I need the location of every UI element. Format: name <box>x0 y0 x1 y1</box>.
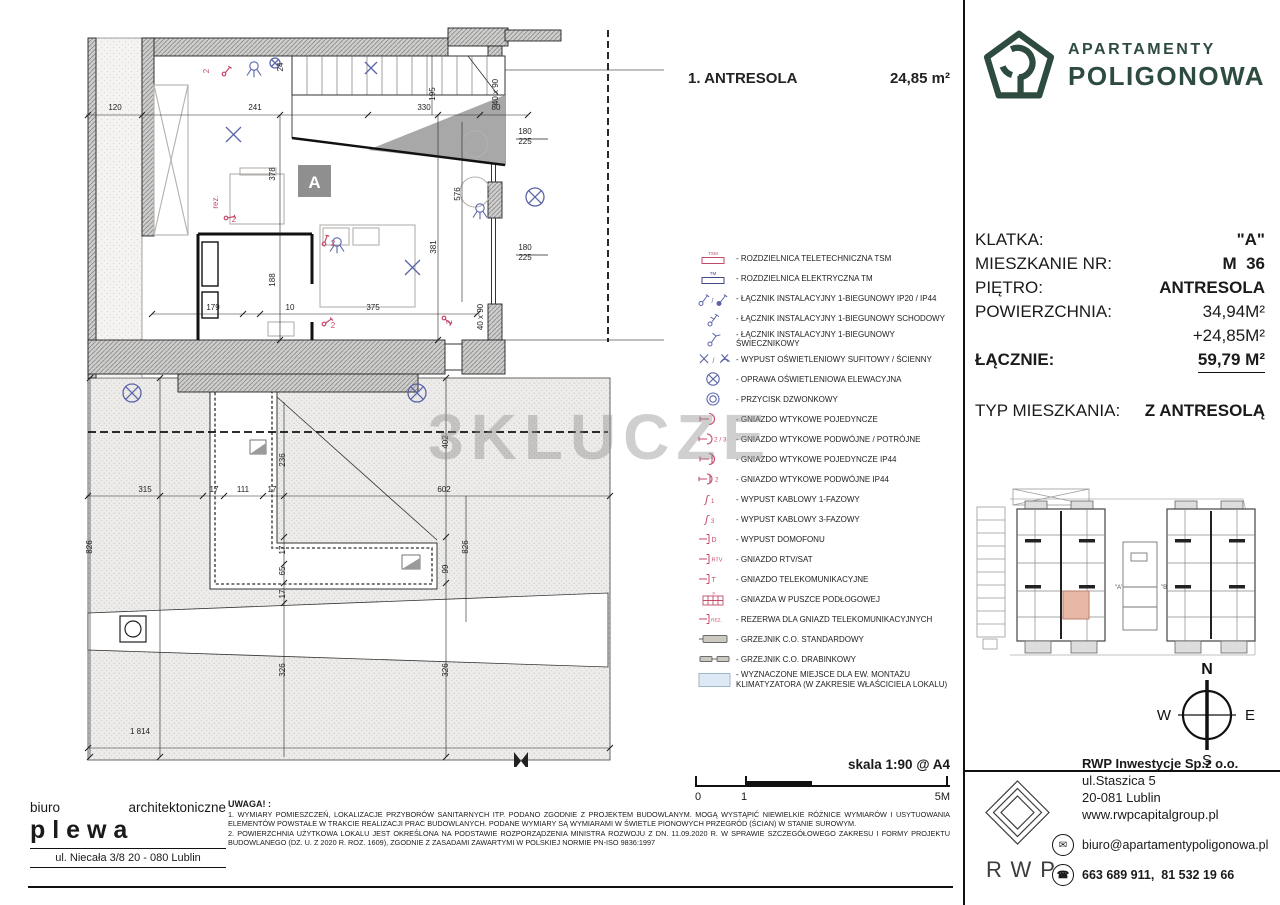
svg-text:2 / 3: 2 / 3 <box>714 437 727 444</box>
svg-text:/: / <box>712 298 714 305</box>
compass-rose: N W E S <box>1148 660 1266 768</box>
highlighted-unit <box>1063 591 1089 619</box>
legend-label: - GNIAZDA W PUSZCE PODŁOGOWEJ <box>736 595 880 604</box>
developer-phones: 663 689 911, 81 532 19 66 <box>1082 868 1234 882</box>
legend-label: - REZERWA DLA GNIAZD TELEKOMUNIKACYJNYCH <box>736 615 932 624</box>
info-value: Z ANTRESOLĄ <box>1145 399 1265 423</box>
svg-text:3: 3 <box>711 519 715 525</box>
legend-label: - GNIAZDO WTYKOWE PODWÓJNE IP44 <box>736 475 889 484</box>
legend-item: - OPRAWA OŚWIETLENIOWA ELEWACYJNA <box>692 370 960 388</box>
svg-text:ʃ: ʃ <box>703 493 710 506</box>
dimension-label: rez. <box>211 195 220 208</box>
legend-item: ʃ1- WYPUST KABLOWY 1-FAZOWY <box>692 490 960 508</box>
dimension-label: 381 <box>429 240 438 254</box>
svg-text:/: / <box>713 358 715 365</box>
legend-label: - PRZYCISK DZWONKOWY <box>736 395 838 404</box>
floor-plan-drawing: A <box>28 22 668 767</box>
dimension-label: 326 <box>278 663 287 677</box>
compass-e: E <box>1245 707 1255 724</box>
bottom-rule <box>28 886 953 888</box>
sw1-legend-icon: / <box>692 290 736 308</box>
dimension-label: 195 <box>428 87 437 101</box>
dimension-label: 225 <box>518 137 532 146</box>
info-row: PIĘTRO:ANTRESOLA <box>975 276 1265 300</box>
svg-text:1: 1 <box>711 499 715 505</box>
dimension-label: 179 <box>206 303 220 312</box>
info-value: "A" <box>1237 228 1265 252</box>
dimension-label: 241 <box>248 103 262 112</box>
info-label: TYP MIESZKANIA: <box>975 399 1120 423</box>
s23-legend-icon: 2 / 3 <box>692 430 736 448</box>
developer-company: RWP Inwestycje Sp.z o.o. <box>1082 755 1272 772</box>
info-value: 34,94M² <box>1203 300 1265 324</box>
info-row: +24,85M² <box>975 324 1265 348</box>
dimension-label: 24 <box>276 62 285 71</box>
floor-plan: A <box>28 22 668 767</box>
info-label: MIESZKANIE NR: <box>975 252 1112 276</box>
legend-item: >- GNIAZDA W PUSZCE PODŁOGOWEJ <box>692 590 960 608</box>
info-label: POWIERZCHNIA: <box>975 300 1112 324</box>
svg-text:A: A <box>308 173 320 192</box>
developer-email: biuro@apartamentypoligonowa.pl <box>1082 838 1268 852</box>
info-label: KLATKA: <box>975 228 1044 252</box>
dimension-label: 826 <box>85 540 94 554</box>
legend-item: - GRZEJNIK C.O. DRABINKOWY <box>692 650 960 668</box>
rez-legend-icon: REZ. <box>692 610 736 628</box>
legend-label: - GNIAZDO WTYKOWE POJEDYNCZE IP44 <box>736 455 896 464</box>
architect-type: biuro architektoniczne <box>30 800 226 815</box>
legend-label: - WYPUST OŚWIETLENIOWY SUFITOWY / ŚCIENN… <box>736 355 932 364</box>
dimension-label: 111 <box>237 485 250 494</box>
dimension-label: 40 x 90 <box>491 78 500 105</box>
tsm-legend-icon: TSM <box>692 250 736 268</box>
dimension-label: 225 <box>518 253 532 262</box>
legend-label: - WYZNACZONE MIEJSCE DLA EW. MONTAŻU KLI… <box>736 670 960 688</box>
building-b <box>1167 501 1255 653</box>
developer-address-block: RWP Inwestycje Sp.z o.o. ul.Staszica 5 2… <box>1082 755 1272 823</box>
svg-text:ʃ: ʃ <box>703 513 710 526</box>
legend-item: - GNIAZDO WTYKOWE POJEDYNCZE <box>692 410 960 428</box>
svg-text:TSM: TSM <box>708 251 718 256</box>
dimension-label: 40 x 90 <box>476 303 485 330</box>
plan-title-row: 1. ANTRESOLA 24,85 m² <box>688 70 950 87</box>
swchand-legend-icon <box>692 330 736 348</box>
info-value: +24,85M² <box>1193 324 1265 348</box>
info-row: TYP MIESZKANIA:Z ANTRESOLĄ <box>975 399 1265 423</box>
email-row: ✉ biuro@apartamentypoligonowa.pl <box>1052 834 1277 856</box>
dimension-label: 2 <box>202 68 211 73</box>
legend-item: T- GNIAZDO TELEKOMUNIKACYJNE <box>692 570 960 588</box>
compass-w: W <box>1157 707 1172 724</box>
legend-label: - WYPUST DOMOFONU <box>736 535 825 544</box>
dimension-label: 99 <box>441 564 450 573</box>
legend-item: REZ.- REZERWA DLA GNIAZD TELEKOMUNIKACYJ… <box>692 610 960 628</box>
pentagon-logo-icon <box>980 19 1058 114</box>
room-label: A <box>298 165 331 197</box>
dimension-label: 326 <box>441 663 450 677</box>
legend-item: - WYZNACZONE MIEJSCE DLA EW. MONTAŻU KLI… <box>692 670 960 688</box>
legend-label: - WYPUST KABLOWY 3-FAZOWY <box>736 515 860 524</box>
ac-legend-icon <box>692 671 736 689</box>
dimension-label: 17 <box>268 485 277 494</box>
dimension-label: 378 <box>268 167 277 181</box>
legend-item: /- WYPUST OŚWIETLENIOWY SUFITOWY / ŚCIEN… <box>692 350 960 368</box>
dimension-label: 826 <box>461 540 470 554</box>
envelope-icon: ✉ <box>1052 834 1074 856</box>
legend-label: - GNIAZDO WTYKOWE PODWÓJNE / POTRÓJNE <box>736 435 920 444</box>
legend-item: RTV- GNIAZDO RTV/SAT <box>692 550 960 568</box>
dom-legend-icon: D <box>692 530 736 548</box>
info-value: M 36 <box>1222 252 1265 276</box>
dimension-label: 2 <box>232 215 237 224</box>
legend-label: - ŁĄCZNIK INSTALACYJNY 1-BIEGUNOWY ŚWIEC… <box>736 330 960 348</box>
dimension-label: 2 <box>331 321 336 330</box>
dimension-label: 65 <box>278 566 287 575</box>
legend-item: D- WYPUST DOMOFONU <box>692 530 960 548</box>
apartment-info: KLATKA:"A"MIESZKANIE NR:M 36PIĘTRO:ANTRE… <box>975 228 1265 423</box>
legend-label: - GRZEJNIK C.O. DRABINKOWY <box>736 655 856 664</box>
compass-n: N <box>1201 661 1213 678</box>
dimension-label: 120 <box>108 103 122 112</box>
s1-legend-icon <box>692 410 736 428</box>
tm-legend-icon: TM <box>692 270 736 288</box>
radstd-legend-icon <box>692 630 736 648</box>
dimension-label: 188 <box>268 273 277 287</box>
legend: TSM- ROZDZIELNICA TELETECHNICZNA TSMTM- … <box>692 250 960 691</box>
brand-name: APARTAMENTY POLIGONOWA <box>1068 41 1265 92</box>
legend-item: - GNIAZDO WTYKOWE POJEDYNCZE IP44 <box>692 450 960 468</box>
notes: UWAGA! : 1. WYMIARY POMIESZCZEŃ, LOKALIZ… <box>228 799 950 848</box>
svg-text:T: T <box>712 577 717 584</box>
svg-text:TM: TM <box>710 271 717 276</box>
dimension-label: 2 <box>445 319 454 324</box>
scale-bar-graphic <box>695 777 950 791</box>
dimension-label: 180 <box>518 127 532 136</box>
s244-legend-icon: 2 <box>692 470 736 488</box>
building-a <box>1017 501 1105 653</box>
legend-item: - ŁĄCZNIK INSTALACYJNY 1-BIEGUNOWY SCHOD… <box>692 310 960 328</box>
legend-label: - ROZDZIELNICA ELEKTRYCZNA TM <box>736 274 873 283</box>
dimension-label: 330 <box>417 103 431 112</box>
info-value: ANTRESOLA <box>1159 276 1265 300</box>
legend-item: ʃ3- WYPUST KABLOWY 3-FAZOWY <box>692 510 960 528</box>
rtv-legend-icon: RTV <box>692 550 736 568</box>
legend-item: 2- GNIAZDO WTYKOWE PODWÓJNE IP44 <box>692 470 960 488</box>
legend-label: - GRZEJNIK C.O. STANDARDOWY <box>736 635 864 644</box>
c3f-legend-icon: ʃ3 <box>692 510 736 528</box>
dimension-label: 1 814 <box>130 727 151 736</box>
info-row: ŁĄCZNIE:59,79 M² <box>975 348 1265 373</box>
legend-label: - GNIAZDO RTV/SAT <box>736 555 813 564</box>
architect-box: biuro architektoniczne p l e w a ul. Nie… <box>30 800 226 868</box>
brand-logo: APARTAMENTY POLIGONOWA <box>980 16 1265 116</box>
c1f-legend-icon: ʃ1 <box>692 490 736 508</box>
legend-label: - WYPUST KABLOWY 1-FAZOWY <box>736 495 860 504</box>
developer-address1: ul.Staszica 5 <box>1082 772 1272 789</box>
legend-item: - ŁĄCZNIK INSTALACYJNY 1-BIEGUNOWY ŚWIEC… <box>692 330 960 348</box>
building-a-label: "A" <box>1115 585 1123 591</box>
radlad-legend-icon <box>692 650 736 668</box>
tel-legend-icon: T <box>692 570 736 588</box>
dimension-label: 402 <box>441 435 450 449</box>
architect-name: p l e w a <box>30 816 226 845</box>
site-plan: "A" "B" <box>975 487 1267 665</box>
info-row: KLATKA:"A" <box>975 228 1265 252</box>
developer-logo: RWP <box>980 778 1055 883</box>
plan-title: 1. ANTRESOLA <box>688 70 797 87</box>
scale-tick-labels: 0 1 5M <box>695 791 950 803</box>
dimension-label: 10 <box>286 303 295 312</box>
legend-label: - ŁĄCZNIK INSTALACYJNY 1-BIEGUNOWY SCHOD… <box>736 314 945 323</box>
legend-label: - ŁĄCZNIK INSTALACYJNY 1-BIEGUNOWY IP20 … <box>736 294 937 303</box>
phone-icon: ☎ <box>1052 864 1074 886</box>
dimension-label: 180 <box>518 243 532 252</box>
fbox-legend-icon: > <box>692 590 736 608</box>
s144-legend-icon <box>692 450 736 468</box>
dimension-label: 602 <box>437 485 451 494</box>
rwp-diamond-icon <box>980 778 1055 850</box>
architect-address: ul. Niecała 3/8 20 - 080 Lublin <box>30 848 226 868</box>
scale-label: skala 1:90 @ A4 <box>695 757 950 772</box>
developer-website: www.rwpcapitalgroup.pl <box>1082 806 1272 823</box>
legend-item: - PRZYCISK DZWONKOWY <box>692 390 960 408</box>
note-item: 1. WYMIARY POMIESZCZEŃ, LOKALIZACJE PRZY… <box>228 810 950 829</box>
dimension-label: 2 <box>331 239 336 248</box>
dimension-label: 17 <box>210 485 219 494</box>
info-row: MIESZKANIE NR:M 36 <box>975 252 1265 276</box>
bell-legend-icon <box>692 390 736 408</box>
plan-area: 24,85 m² <box>890 70 950 87</box>
legend-item: /- ŁĄCZNIK INSTALACYJNY 1-BIEGUNOWY IP20… <box>692 290 960 308</box>
parking-strip <box>977 507 1005 649</box>
scale-bar: skala 1:90 @ A4 0 1 5M <box>695 757 950 803</box>
rwp-logo-text: RWP <box>986 857 1055 883</box>
info-label: PIĘTRO: <box>975 276 1043 300</box>
svg-text:2: 2 <box>715 477 719 484</box>
svg-text:D: D <box>712 537 717 544</box>
info-row: POWIERZCHNIA:34,94M² <box>975 300 1265 324</box>
legend-label: - ROZDZIELNICA TELETECHNICZNA TSM <box>736 254 891 263</box>
legend-label: - GNIAZDO TELEKOMUNIKACYJNE <box>736 575 868 584</box>
center-structure <box>1123 542 1157 630</box>
legend-label: - GNIAZDO WTYKOWE POJEDYNCZE <box>736 415 878 424</box>
phone-row: ☎ 663 689 911, 81 532 19 66 <box>1052 864 1277 886</box>
dimension-label: 576 <box>453 187 462 201</box>
info-value: 59,79 M² <box>1198 348 1265 373</box>
info-label: ŁĄCZNIE: <box>975 348 1054 373</box>
legend-label: - OPRAWA OŚWIETLENIOWA ELEWACYJNA <box>736 375 902 384</box>
dimension-label: 17 <box>278 545 287 554</box>
svg-text:REZ.: REZ. <box>711 618 722 624</box>
note-item: 2. POWIERZCHNIA UŻYTKOWA LOKALU JEST OKR… <box>228 829 950 848</box>
xceil-legend-icon: / <box>692 350 736 368</box>
dimension-label: 315 <box>138 485 152 494</box>
legend-item: TSM- ROZDZIELNICA TELETECHNICZNA TSM <box>692 250 960 268</box>
dimension-label: 236 <box>278 453 287 467</box>
legend-item: TM- ROZDZIELNICA ELEKTRYCZNA TM <box>692 270 960 288</box>
dimension-label: 375 <box>366 303 380 312</box>
svg-text:RTV: RTV <box>712 558 723 564</box>
elev-legend-icon <box>692 370 736 388</box>
swstair-legend-icon <box>692 310 736 328</box>
legend-item: 2 / 3- GNIAZDO WTYKOWE PODWÓJNE / POTRÓJ… <box>692 430 960 448</box>
legend-item: - GRZEJNIK C.O. STANDARDOWY <box>692 630 960 648</box>
dimension-label: 17 <box>278 589 287 598</box>
developer-address2: 20-081 Lublin <box>1082 789 1272 806</box>
